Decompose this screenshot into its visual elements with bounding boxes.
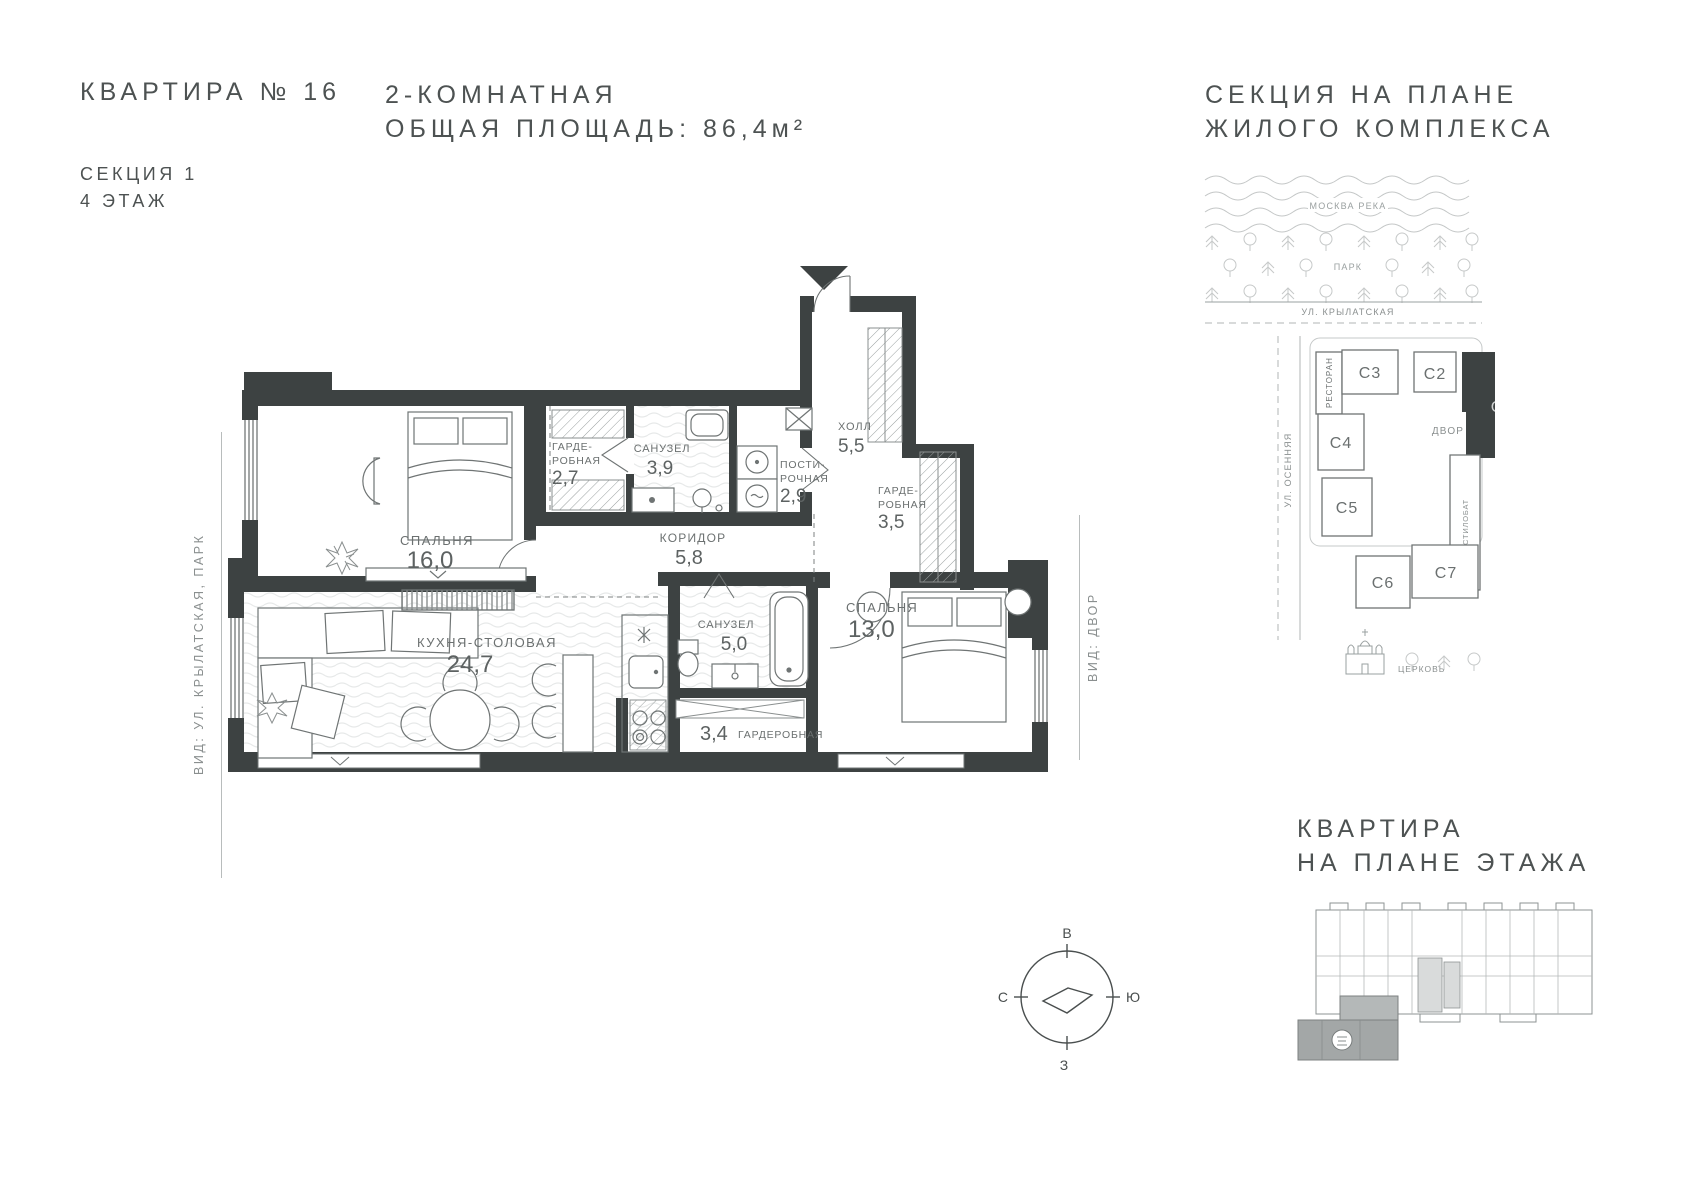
room-area: 3,9 [647, 458, 673, 479]
room-area: 5,8 [675, 547, 703, 569]
compass-north: С [998, 989, 1008, 1005]
room-label: КУХНЯ-СТОЛОВАЯ [417, 635, 557, 650]
room-area: 3,4 [700, 723, 728, 745]
room-label: СПАЛЬНЯ [400, 533, 474, 548]
floor-label: 4 ЭТАЖ [80, 187, 168, 216]
room-label: СПАЛЬНЯ [846, 600, 918, 615]
street-top-label: УЛ. КРЫЛАТСКАЯ [1301, 307, 1394, 317]
buildings [1316, 350, 1495, 608]
section-c3-label: С3 [1359, 365, 1381, 382]
section-label: СЕКЦИЯ 1 [80, 160, 198, 189]
siteplan-title-line2: ЖИЛОГО КОМПЛЕКСА [1205, 112, 1555, 146]
highlighted-apartment [1298, 996, 1398, 1060]
room-area: 16,0 [407, 547, 454, 574]
view-label-right: ВИД: ДВОР [1086, 515, 1100, 760]
courtyard-label: ДВОР [1432, 426, 1464, 437]
room-area: 13,0 [848, 616, 895, 643]
apartment-type: 2-КОМНАТНАЯ [385, 78, 618, 112]
section-c2-label: С2 [1424, 366, 1446, 383]
siteplan-title-line1: СЕКЦИЯ НА ПЛАНЕ [1205, 78, 1518, 112]
room-area: 24,7 [447, 651, 494, 678]
room-label: ХОЛЛ [838, 421, 872, 433]
section-c6-label: С6 [1372, 575, 1394, 592]
room-label: РОБНАЯ [552, 455, 601, 467]
stair-core [1418, 958, 1460, 1012]
apartment-badge [1332, 1030, 1352, 1050]
view-line-right [1079, 515, 1080, 760]
site-plan: МОСКВА РЕКА ПАРК УЛ. КРЫЛАТСКАЯ УЛ. ОСЕН… [1195, 160, 1495, 690]
room-label: ГАРДЕ- [878, 485, 919, 497]
section-c1-label: С1 [1491, 399, 1495, 416]
room-area: 2,9 [780, 486, 806, 507]
room-area: 3,5 [878, 512, 904, 533]
room-label: КОРИДОР [660, 531, 727, 545]
room-label: ГАРДЕРОБНАЯ [738, 729, 823, 741]
church-icon [1346, 629, 1384, 674]
compass: В Ю З С [995, 915, 1145, 1085]
room-label: РОЧНАЯ [780, 473, 829, 485]
room-label: ПОСТИ- [780, 459, 825, 471]
section-c7-label: С7 [1435, 565, 1457, 582]
room-label: ГАРДЕ- [552, 441, 593, 453]
room-label: САНУЗЕЛ [634, 443, 691, 455]
section-c4-label: С4 [1330, 435, 1352, 452]
view-line-left [221, 432, 222, 878]
restaurant-label: РЕСТОРАН [1325, 357, 1334, 408]
stylobate-label: СТИЛОБАТ [1461, 499, 1470, 545]
page-title: КВАРТИРА № 16 [80, 78, 341, 107]
apartment-floor-plan: СПАЛЬНЯ 16,0 ГАРДЕ- РОБНАЯ 2,7 САНУЗЕЛ 3… [225, 262, 1055, 777]
view-label-left: ВИД: УЛ. КРЫЛАТСКАЯ, ПАРК [192, 430, 206, 878]
compass-east: В [1062, 925, 1071, 941]
floor-plate-mini [1290, 895, 1610, 1075]
room-label: САНУЗЕЛ [698, 619, 755, 631]
street-left-label: УЛ. ОСЕННЯЯ [1283, 432, 1293, 507]
compass-needle [1043, 988, 1092, 1013]
total-area: ОБЩАЯ ПЛОЩАДЬ: 86,4м² [385, 112, 807, 146]
park-label: ПАРК [1334, 262, 1363, 272]
room-area: 2,7 [552, 468, 578, 489]
miniplan-title-line1: КВАРТИРА [1297, 812, 1465, 846]
room-area: 5,5 [838, 436, 864, 457]
church-label: ЦЕРКОВЬ [1398, 664, 1445, 674]
miniplan-title-line2: НА ПЛАНЕ ЭТАЖА [1297, 846, 1590, 880]
river-label: МОСКВА РЕКА [1310, 201, 1387, 211]
section-c5-label: С5 [1336, 500, 1358, 517]
compass-south: Ю [1126, 989, 1140, 1005]
room-label: РОБНАЯ [878, 499, 927, 511]
compass-west: З [1060, 1057, 1068, 1073]
room-area: 5,0 [721, 634, 747, 655]
